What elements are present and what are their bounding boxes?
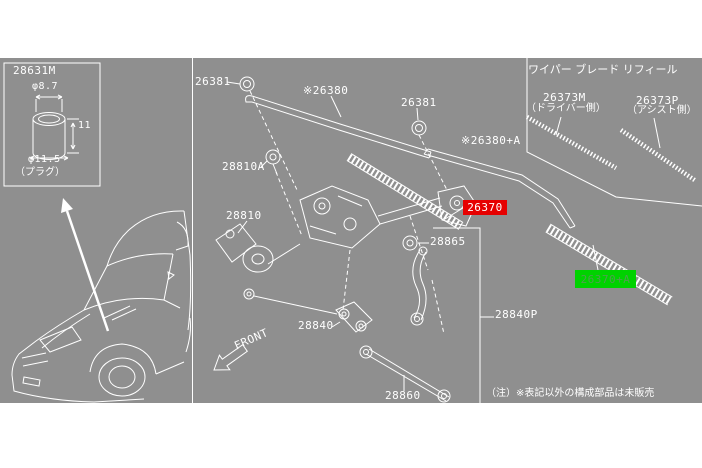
part-label-refill-driver[interactable]: 26373M xyxy=(543,92,586,103)
part-label-wiper-blade-driver-selected[interactable]: 26370 xyxy=(463,200,507,215)
part-label-wiper-arm-assist[interactable]: ※26380+A xyxy=(461,135,521,146)
footnote: （注）※表記以外の構成部品は未販売 xyxy=(486,389,654,399)
refill-assist-side-label: （アシスト側） xyxy=(627,106,697,116)
part-label-wiper-motor[interactable]: 28810 xyxy=(226,210,262,221)
plug-caption: （プラグ） xyxy=(15,168,65,178)
part-label-pivot-cap-2[interactable]: 26381 xyxy=(401,97,437,108)
part-label-wiper-arm-driver[interactable]: ※26380 xyxy=(303,85,348,96)
part-label-pivot-assembly[interactable]: 28840P xyxy=(495,309,538,320)
refill-driver-side-label: （ドライバー側） xyxy=(526,104,606,114)
part-label-link-bracket[interactable]: 28840 xyxy=(298,320,334,331)
part-label-link-rod[interactable]: 28860 xyxy=(385,390,421,401)
part-label-pivot-cap-1[interactable]: 26381 xyxy=(195,76,231,87)
part-label-pivot-bolt[interactable]: 28810A xyxy=(222,161,265,172)
inset-part-number[interactable]: 28631M xyxy=(13,65,56,76)
part-label-wiper-blade-assist-highlighted[interactable]: 26370+A xyxy=(575,270,636,288)
dimension-side: 11 xyxy=(78,121,91,131)
refill-panel-title: ワイパー ブレード リフィール xyxy=(528,64,678,75)
dimension-top: φ8.7 xyxy=(32,82,58,92)
parts-diagram-page: 28631M φ8.7 11 φ11.5 （プラグ） 26381 ※26380 … xyxy=(0,0,702,468)
part-label-blade-stud[interactable]: 28865 xyxy=(430,236,466,247)
dimension-bottom: φ11.5 xyxy=(28,155,61,165)
